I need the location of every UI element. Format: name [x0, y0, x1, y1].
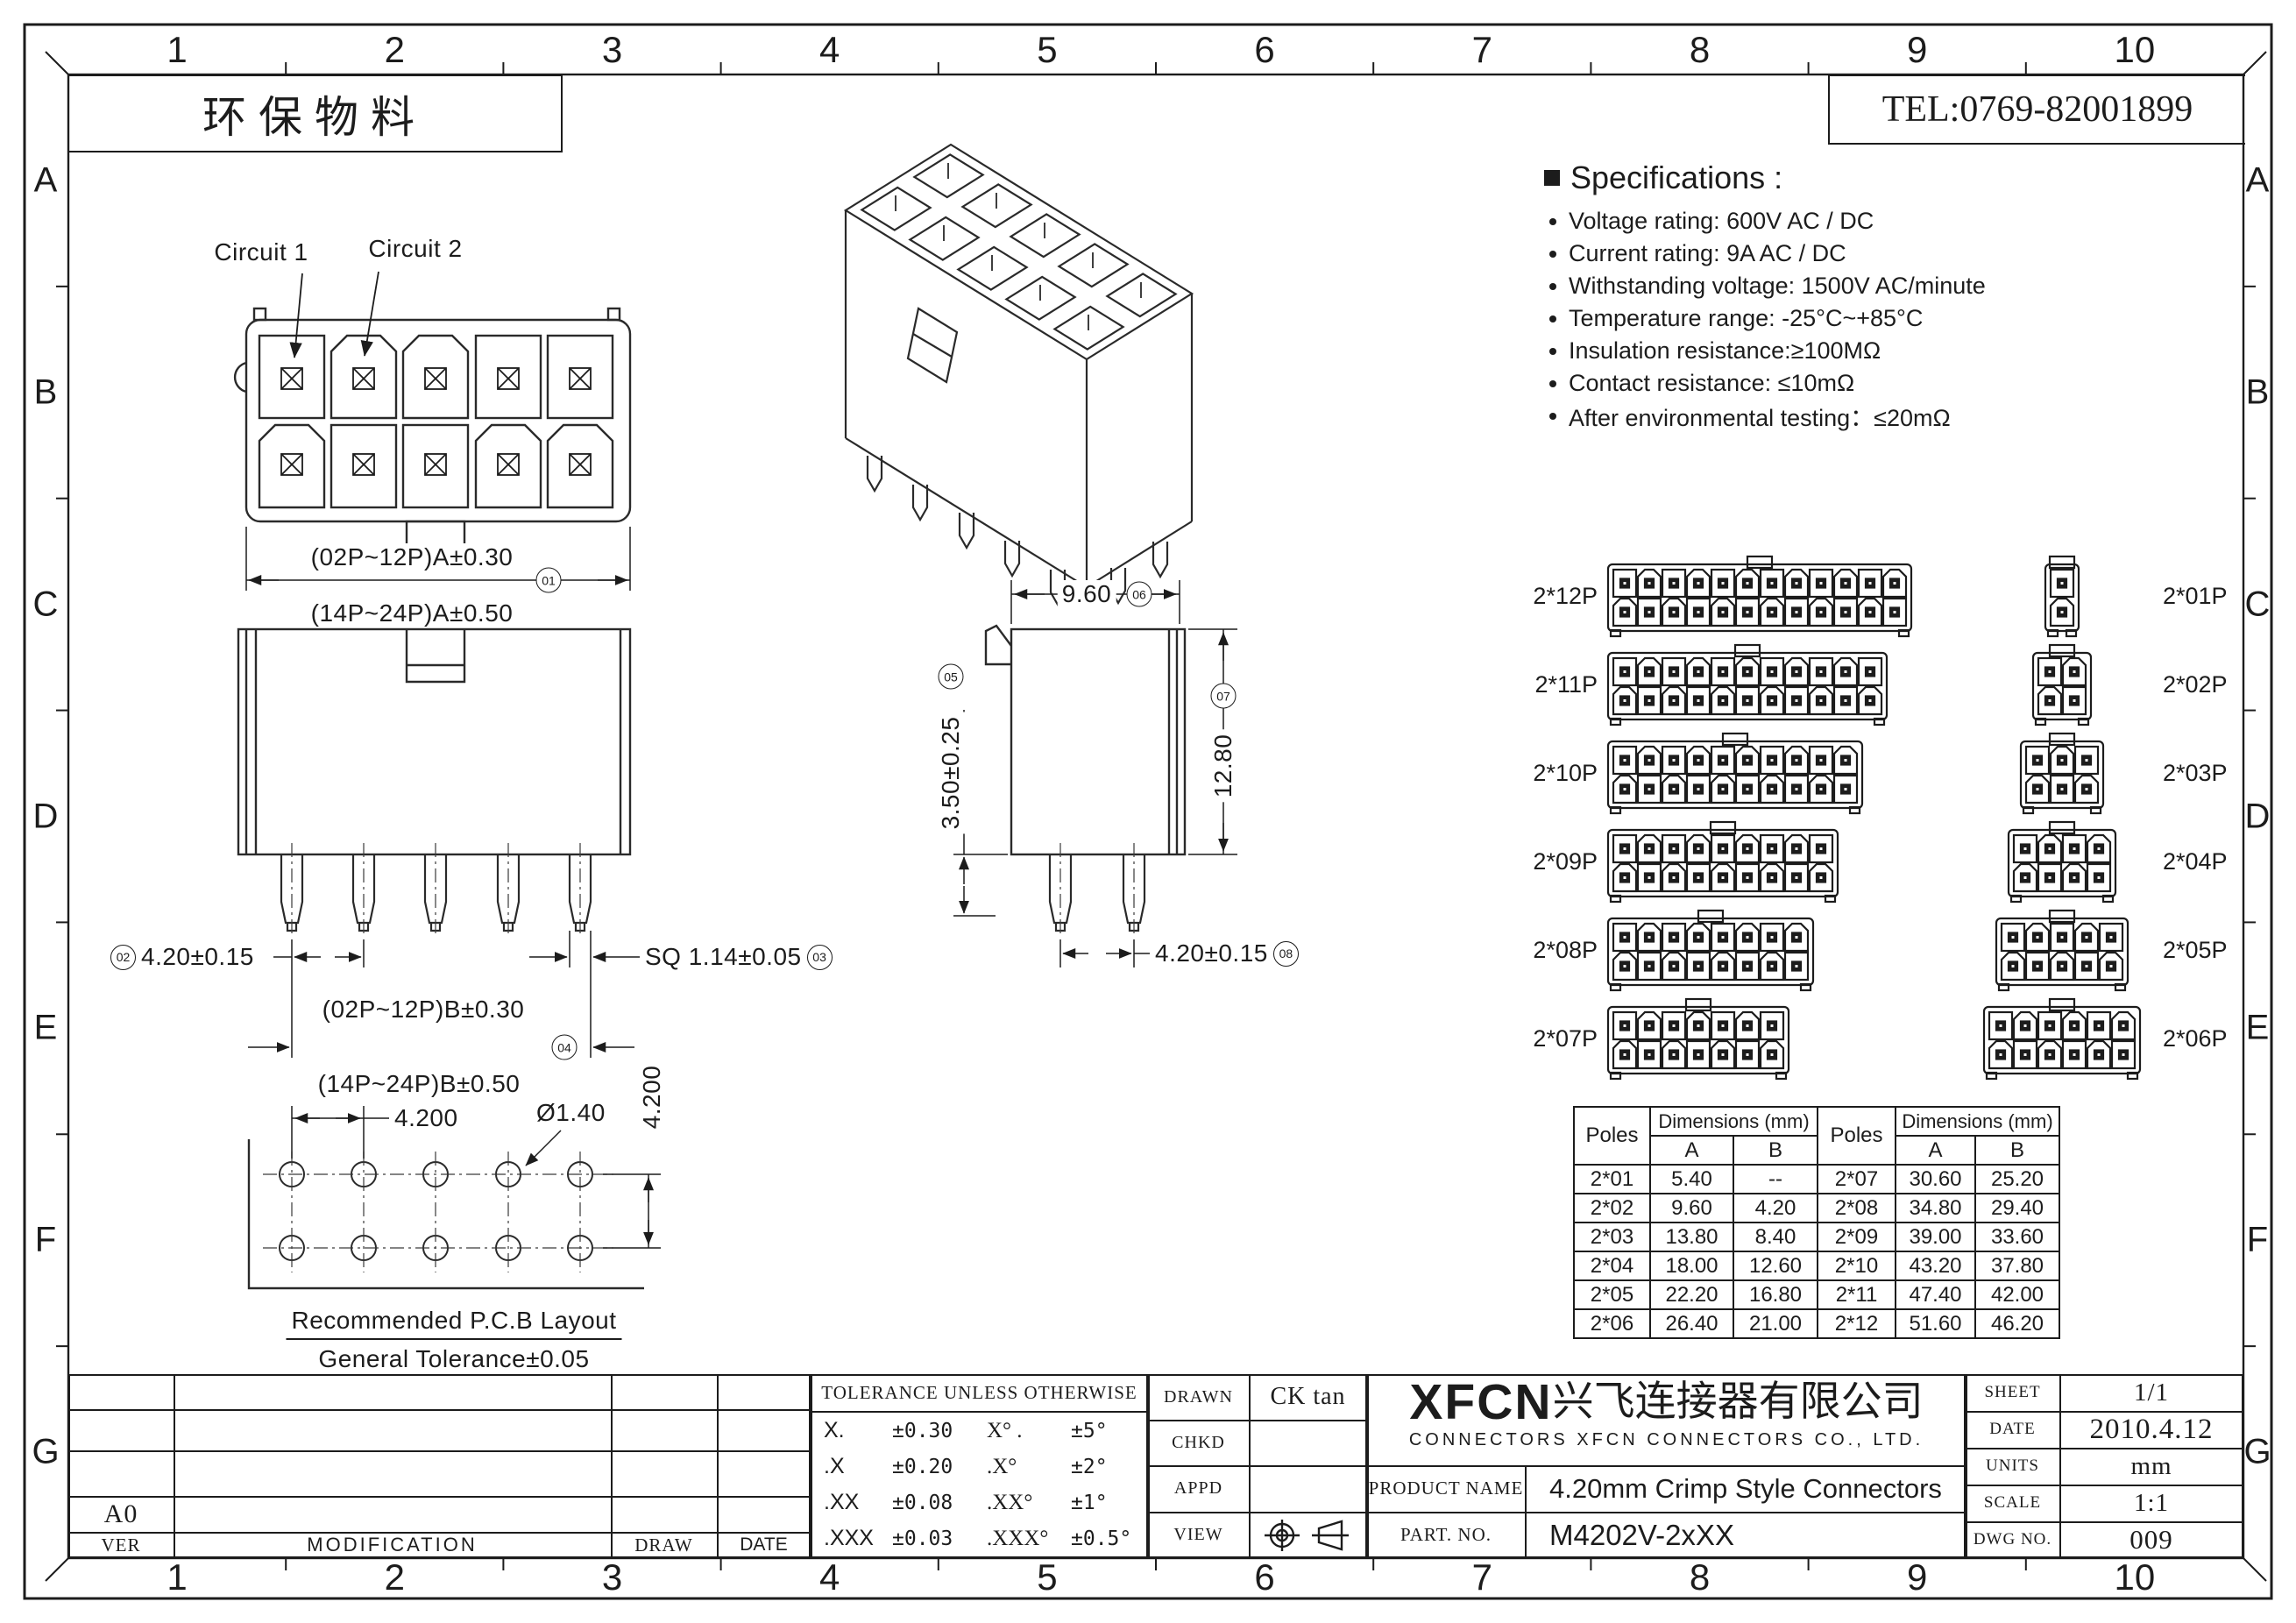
tol-label: .XX [824, 1490, 892, 1515]
grid-row-label: A [34, 160, 58, 200]
col-header-a: A [1896, 1136, 1975, 1165]
tol-angle-value: ±5° [1071, 1420, 1108, 1442]
drawn-label: DRAWN [1148, 1374, 1249, 1420]
bullet-icon [1549, 413, 1556, 420]
product-name-label: PRODUCT NAME [1367, 1465, 1525, 1512]
tol-angle-value: ±2° [1071, 1456, 1108, 1478]
connector-drawing-2x07p [1606, 997, 1961, 1081]
part-no-value: M4202V-2xXX [1549, 1512, 1948, 1558]
revision-version-value: A0 [68, 1496, 174, 1532]
revision-draw-header: DRAW [611, 1532, 717, 1558]
tol-angle-label: .X° [987, 1455, 1071, 1479]
grid-col-label: 5 [1037, 1556, 1057, 1598]
tol-angle-value: ±1° [1071, 1492, 1108, 1514]
spec-text: Withstanding voltage: 1500V AC/minute [1569, 273, 1986, 300]
units-value: mm [2059, 1448, 2243, 1485]
date-value: 2010.4.12 [2059, 1411, 2243, 1448]
grid-col-label: 1 [167, 1556, 187, 1598]
dim-width: 9.60 [1058, 580, 1116, 608]
connector-drawing-2x12p [1606, 555, 1961, 639]
tol-label: .X [824, 1454, 892, 1479]
tol-angle-label: X° . [987, 1419, 1071, 1443]
scale-label: SCALE [1966, 1485, 2059, 1521]
grid-row-label: F [2247, 1221, 2268, 1260]
grid-col-label: 2 [385, 29, 405, 71]
elevation-view [238, 629, 630, 931]
spec-item: Insulation resistance:≥100MΩ [1544, 335, 2210, 367]
dim-standoff: 3.50±0.25 [937, 712, 965, 834]
grid-col-label: 3 [602, 1556, 622, 1598]
grid-col-label: 5 [1037, 29, 1057, 71]
connector-drawing-2x08p [1606, 909, 1961, 993]
grid-row-label: E [34, 1009, 58, 1048]
grid-row-label: A [2246, 160, 2270, 200]
drawn-value: CK tan [1249, 1374, 1367, 1420]
variant-label-2x09p: 2*09P [1529, 848, 1606, 875]
spec-item: Withstanding voltage: 1500V AC/minute [1544, 270, 2210, 302]
grid-row-label: F [35, 1221, 56, 1260]
revision-ver-header: VER [68, 1532, 174, 1558]
variant-row: 2*08P 2*05P [1529, 906, 2243, 995]
pcb-dim-hole: Ø1.40 [536, 1099, 606, 1127]
specifications-title-text: Specifications : [1570, 159, 1782, 196]
company-name: XFCN兴飞连接器有限公司 CONNECTORS XFCN CONNECTORS… [1367, 1378, 1966, 1449]
col-header-poles: Poles [1818, 1107, 1896, 1165]
table-row: 2*0522.2016.802*1147.4042.00 [1574, 1280, 2059, 1309]
dim-b-line2: (14P~24P)B±0.50 [314, 1070, 525, 1098]
grid-col-label: 3 [602, 29, 622, 71]
grid-row-label: G [32, 1433, 59, 1472]
connector-drawing-2x03p [2019, 732, 2105, 816]
tol-angle-label: .XX° [987, 1491, 1071, 1515]
grid-col-label: 6 [1254, 29, 1274, 71]
balloon-05: 05 [939, 664, 964, 690]
dwg-no-value: 009 [2059, 1521, 2243, 1558]
grid-col-label: 7 [1472, 29, 1492, 71]
dim-pitch-side-text: 4.20±0.15 [1155, 939, 1268, 967]
connector-drawing-2x05p [1995, 909, 2129, 993]
variant-label-2x01p: 2*01P [2163, 583, 2243, 610]
grid-row-label: E [2246, 1009, 2270, 1048]
variant-row: 2*09P 2*04P [1529, 818, 2243, 906]
variant-label-2x11p: 2*11P [1529, 671, 1606, 698]
balloon-04: 04 [552, 1035, 578, 1060]
spec-item: Voltage rating: 600V AC / DC [1544, 205, 2210, 237]
dim-a-line2: (14P~24P)A±0.50 [307, 599, 518, 627]
side-view [986, 626, 1185, 931]
grid-col-label: 10 [2115, 1556, 2156, 1598]
spec-item: Temperature range: -25°C~+85°C [1544, 302, 2210, 335]
grid-col-label: 7 [1472, 1556, 1492, 1598]
sheet-value: 1/1 [2059, 1374, 2243, 1411]
spec-text: Voltage rating: 600V AC / DC [1569, 208, 1874, 235]
spec-item: Contact resistance: ≤10mΩ [1544, 367, 2210, 400]
table-row: 2*029.604.202*0834.8029.40 [1574, 1194, 2059, 1223]
grid-col-label: 9 [1907, 29, 1927, 71]
grid-row-label: G [2243, 1433, 2271, 1472]
tol-label: .XXX [824, 1526, 892, 1551]
connector-drawing-2x01p [2044, 555, 2080, 639]
pcb-layout [249, 1139, 644, 1288]
dim-b-line1: (02P~12P)B±0.30 [318, 996, 529, 1024]
col-header-dimensions: Dimensions (mm) [1896, 1107, 2059, 1136]
grid-col-label: 2 [385, 1556, 405, 1598]
variant-label-2x02p: 2*02P [2163, 671, 2243, 698]
table-row: 2*015.40--2*0730.6025.20 [1574, 1165, 2059, 1194]
pcb-caption2: General Tolerance±0.05 [318, 1345, 589, 1373]
spec-item: After environmental testing：≤20mΩ [1544, 400, 2210, 432]
connector-drawing-2x02p [2031, 643, 2093, 727]
tol-label: X. [824, 1418, 892, 1443]
appd-label: APPD [1148, 1465, 1249, 1512]
table-row: 2*0418.0012.602*1043.2037.80 [1574, 1251, 2059, 1280]
grid-col-label: 1 [167, 29, 187, 71]
specifications-title: Specifications : [1544, 159, 2210, 196]
variant-label-2x08p: 2*08P [1529, 937, 1606, 964]
poles-dimension-table: Poles Dimensions (mm) Poles Dimensions (… [1573, 1106, 2060, 1339]
company-logo-text: XFCN [1409, 1374, 1552, 1430]
product-name-value: 4.20mm Crimp Style Connectors [1549, 1465, 1948, 1512]
circuit-leaders [294, 272, 379, 358]
bullet-icon [1549, 251, 1556, 258]
col-header-a: A [1650, 1136, 1733, 1165]
telephone-box: TEL:0769-82001899 [1828, 74, 2245, 145]
grid-row-label: D [2245, 797, 2271, 836]
company-name-cn: 兴飞连接器有限公司 [1553, 1379, 1924, 1425]
grid-col-label: 6 [1254, 1556, 1274, 1598]
units-label: UNITS [1966, 1448, 2059, 1485]
spec-item: Current rating: 9A AC / DC [1544, 237, 2210, 270]
grid-col-label: 8 [1690, 1556, 1710, 1598]
revision-table [68, 1374, 811, 1558]
spec-text: Current rating: 9A AC / DC [1569, 240, 1846, 267]
tol-value: ±0.08 [892, 1492, 987, 1514]
company-name-en: CONNECTORS XFCN CONNECTORS CO., LTD. [1367, 1431, 1966, 1449]
grid-row-label: C [2245, 585, 2271, 624]
variant-row: 2*10P 2*03P [1529, 729, 2243, 818]
pcb-caption1: Recommended P.C.B Layout [286, 1307, 621, 1340]
variant-row: 2*07P 2*06P [1529, 995, 2243, 1083]
bullet-icon [1549, 315, 1556, 322]
isometric-view [846, 145, 1192, 605]
col-header-poles: Poles [1574, 1107, 1650, 1165]
balloon-02: 02 [110, 945, 136, 970]
chkd-label: CHKD [1148, 1420, 1249, 1465]
bullet-icon [1549, 218, 1556, 225]
tol-angle-label: .XXX° [987, 1527, 1071, 1551]
variant-row: 2*11P 2*02P [1529, 641, 2243, 729]
table-row: 2*0313.808.402*0939.0033.60 [1574, 1223, 2059, 1251]
tol-value: ±0.03 [892, 1527, 987, 1550]
variant-label-2x07p: 2*07P [1529, 1025, 1606, 1052]
dim-pitch-front-text: 4.20±0.15 [141, 943, 254, 971]
bullet-icon [1549, 380, 1556, 387]
grid-col-label: 10 [2115, 29, 2156, 71]
balloon-01: 01 [536, 568, 562, 593]
tol-value: ±0.20 [892, 1456, 987, 1478]
variant-label-2x06p: 2*06P [2163, 1025, 2243, 1052]
spec-text: Insulation resistance:≥100MΩ [1569, 337, 1881, 365]
grid-col-label: 4 [819, 1556, 840, 1598]
tol-value: ±0.30 [892, 1420, 987, 1442]
grid-row-label: D [33, 797, 59, 836]
dim-sq-text: SQ 1.14±0.05 [645, 943, 802, 971]
variant-label-2x03p: 2*03P [2163, 760, 2243, 787]
specifications: Specifications : Voltage rating: 600V AC… [1544, 159, 2210, 432]
balloon-08: 08 [1273, 941, 1299, 967]
col-header-b: B [1733, 1136, 1818, 1165]
col-header-b: B [1975, 1136, 2059, 1165]
title-block: A0 VER MODIFICATION DRAW DATE TOLERANCE … [68, 1374, 2243, 1558]
connector-drawing-2x04p [2007, 820, 2117, 904]
dim-pitch-side: 4.20±0.15 08 [1155, 939, 1299, 967]
variant-label-2x10p: 2*10P [1529, 760, 1606, 787]
connector-drawing-2x10p [1606, 732, 1961, 816]
grid-row-label: B [2246, 372, 2270, 412]
circuit2-label: Circuit 2 [368, 235, 462, 263]
dwg-no-label: DWG NO. [1966, 1521, 2059, 1558]
connector-drawing-2x09p [1606, 820, 1961, 904]
sheet-label: SHEET [1966, 1374, 2059, 1411]
bullet-icon [1549, 348, 1556, 355]
grid-row-label: B [34, 372, 58, 412]
pcb-dim-pitch-h: 4.200 [394, 1104, 458, 1132]
date-label: DATE [1966, 1411, 2059, 1448]
variant-label-2x12p: 2*12P [1529, 583, 1606, 610]
spec-text: Temperature range: -25°C~+85°C [1569, 305, 1923, 332]
variant-label-2x05p: 2*05P [2163, 937, 2243, 964]
eco-material-label: 环保物料 [68, 74, 563, 152]
variant-label-2x04p: 2*04P [2163, 848, 2243, 875]
grid-col-label: 4 [819, 29, 840, 71]
col-header-dimensions: Dimensions (mm) [1650, 1107, 1818, 1136]
balloon-03: 03 [807, 945, 833, 970]
grid-row-label: C [33, 585, 59, 624]
revision-modification-header: MODIFICATION [174, 1532, 611, 1558]
projection-symbol [1249, 1512, 1367, 1558]
bullet-icon [1549, 283, 1556, 290]
revision-date-header: DATE [717, 1532, 811, 1558]
view-label: VIEW [1148, 1512, 1249, 1558]
dim-sq: SQ 1.14±0.05 03 [645, 943, 833, 971]
spec-text: After environmental testing：≤20mΩ [1569, 399, 1951, 433]
dim-a-line1: (02P~12P)A±0.30 [307, 543, 518, 571]
circuit1-label: Circuit 1 [214, 238, 308, 266]
grid-col-label: 8 [1690, 29, 1710, 71]
dim-pitch-front: 02 4.20±0.15 [110, 943, 254, 971]
front-view [235, 308, 630, 549]
table-row: 2*0626.4021.002*1251.6046.20 [1574, 1309, 2059, 1338]
dim-height: 12.80 [1209, 730, 1237, 803]
connector-drawing-2x11p [1606, 643, 1961, 727]
dimension-lines [246, 527, 1237, 1248]
scale-value: 1:1 [2059, 1485, 2243, 1521]
grid-col-label: 9 [1907, 1556, 1927, 1598]
connector-variants: 2*12P 2*01P 2*11P 2*02P 2*10P 2*03P 2*09… [1529, 552, 2243, 1083]
balloon-07: 07 [1211, 684, 1237, 709]
connector-drawing-2x06p [1982, 997, 2142, 1081]
pcb-dim-pitch-v: 4.200 [638, 1066, 666, 1130]
tol-angle-value: ±0.5° [1071, 1527, 1131, 1550]
spec-text: Contact resistance: ≤10mΩ [1569, 370, 1854, 397]
part-no-label: PART. NO. [1367, 1512, 1525, 1558]
balloon-06: 06 [1127, 582, 1152, 607]
drawing-sheet: 环保物料 TEL:0769-82001899 Specifications : … [0, 0, 2296, 1623]
variant-row: 2*12P 2*01P [1529, 552, 2243, 641]
tolerance-title: TOLERANCE UNLESS OTHERWISE [811, 1374, 1148, 1413]
square-bullet-icon [1544, 170, 1560, 186]
